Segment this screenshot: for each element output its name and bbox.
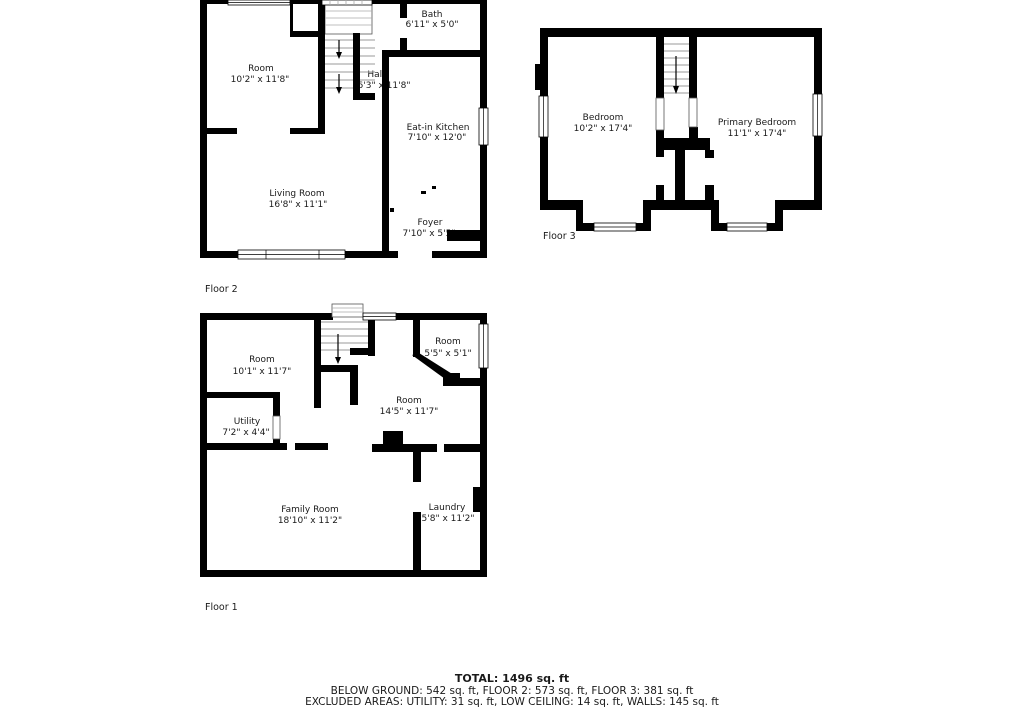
floor1-utility-dims: 7'2" x 4'4" (222, 428, 269, 438)
summary-total: TOTAL: 1496 sq. ft (455, 672, 569, 685)
stairwell-opening (322, 0, 372, 5)
area-summary: TOTAL: 1496 sq. ft BELOW GROUND: 542 sq.… (305, 672, 719, 708)
chimney-block (383, 431, 403, 445)
floor3-bedroom-name: Bedroom (583, 113, 624, 123)
chimney-bump (535, 64, 541, 90)
floor3-stairs (664, 44, 689, 94)
floorplan-drawing: Room 10'2" x 11'8" Bath 6'11" x 5'0" Hal… (0, 0, 1024, 720)
floor1-label: Floor 1 (205, 602, 238, 613)
floor1-windows (273, 304, 488, 439)
summary-excluded: EXCLUDED AREAS: UTILITY: 31 sq. ft, LOW … (305, 696, 719, 708)
door-opening (398, 251, 432, 258)
floor3-label: Floor 3 (543, 231, 576, 242)
floor2-kitchen-name: Eat-in Kitchen (407, 123, 470, 133)
floor1-room-ne-dims: 5'5" x 5'1" (424, 349, 471, 359)
floor3-room-labels: Bedroom 10'2" x 17'4" Primary Bedroom 11… (574, 113, 797, 139)
floor2-room-dims: 10'2" x 11'8" (231, 75, 290, 85)
floor1-room-nw-dims: 10'1" x 11'7" (233, 367, 292, 377)
floor1-laundry-dims: 5'8" x 11'2" (422, 514, 475, 524)
stair-railing (689, 98, 697, 127)
floor2-bath-dims: 6'11" x 5'0" (406, 20, 459, 30)
stair-railing (656, 98, 664, 130)
floorplan-page: Room 10'2" x 11'8" Bath 6'11" x 5'0" Hal… (0, 0, 1024, 720)
door-opening (273, 416, 280, 439)
fixture-dot (432, 186, 436, 189)
floor1-stairs-upper-flight (332, 304, 363, 317)
floor2-room-name: Room (248, 64, 274, 74)
floor1-room-ne-name: Room (435, 337, 461, 347)
floor2-living-dims: 16'8" x 11'1" (269, 200, 328, 210)
floor1-utility-name: Utility (234, 417, 261, 427)
floor3-primary-dims: 11'1" x 17'4" (728, 129, 787, 139)
floor2-foyer-name: Foyer (418, 218, 443, 228)
floor3-primary-name: Primary Bedroom (718, 118, 796, 128)
floor2-room-labels: Room 10'2" x 11'8" Bath 6'11" x 5'0" Hal… (231, 10, 470, 239)
floor2-bath-name: Bath (422, 10, 443, 20)
floor1-room-mid-dims: 14'5" x 11'7" (380, 407, 439, 417)
floor2-kitchen-dims: 7'10" x 12'0" (408, 133, 467, 143)
fixture-dot (421, 191, 426, 194)
floor1-laundry-name: Laundry (429, 503, 466, 513)
floor2-foyer-stub-wall (447, 230, 487, 241)
floor1-plan: Room 10'1" x 11'7" Room 5'5" x 5'1" Room… (200, 304, 488, 613)
floor1-family-dims: 18'10" x 11'2" (278, 516, 342, 526)
floor1-room-nw-name: Room (249, 355, 275, 365)
wall-bump (473, 487, 481, 512)
floor2-plan: Room 10'2" x 11'8" Bath 6'11" x 5'0" Hal… (200, 0, 488, 295)
floor1-stairs (321, 322, 368, 364)
floor2-stairs-upper-flight (325, 4, 372, 34)
floor2-stairs (325, 4, 375, 94)
floor3-bedroom-dims: 10'2" x 17'4" (574, 124, 633, 134)
floor3-plan: Bedroom 10'2" x 17'4" Primary Bedroom 11… (535, 28, 822, 242)
floor2-living-name: Living Room (269, 189, 324, 199)
floor2-label: Floor 2 (205, 284, 238, 295)
floor1-room-mid-name: Room (396, 396, 422, 406)
floor1-family-name: Family Room (281, 505, 338, 515)
